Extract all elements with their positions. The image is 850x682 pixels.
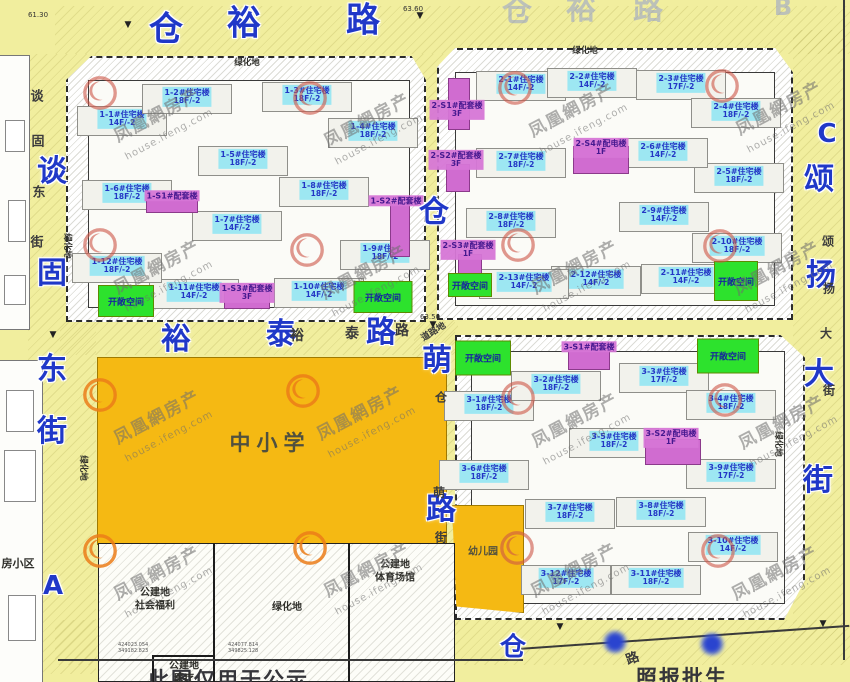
existing-building [8,200,26,242]
building-label: 1-2#住宅楼18F/-2 [162,87,211,107]
building-label: 3-6#住宅楼18F/-2 [459,463,508,483]
site-plan-map: 房小区 中小学 幼儿园 此图仅用于公示 照报批生 1-1#住宅楼14F/-21-… [0,0,850,682]
support-building-label: 3-S2#配电楼1F [644,428,699,448]
open-space: 开敞空间 [697,339,759,374]
road-name-char: 东 [37,344,67,388]
road-name-char: 大 [820,325,832,342]
parcel-divider [348,543,350,682]
grid-marker-b: B [774,0,792,21]
building-label: 3-10#住宅楼14F/-2 [706,535,761,555]
support-building-label: 1-S1#配套楼 [145,190,200,201]
support-building-footprint [568,350,610,370]
building-label: 3-11#住宅楼18F/-2 [629,568,684,588]
building-label: 2-9#住宅楼14F/-2 [639,205,688,225]
survey-arrow-icon: ▼ [820,619,827,629]
existing-building [5,120,25,152]
open-space: 开敞空间 [455,341,511,376]
building-label: 2-2#住宅楼14F/-2 [567,71,616,91]
existing-building [8,595,36,641]
school-area: 中小学 [97,357,447,545]
green-land-label: 绿化地 [572,44,598,56]
grid-marker-a: A [43,571,63,601]
road-name-char: 仓 [502,0,532,30]
road-name-char: 街 [37,406,67,450]
support-building-label: 3-S1#配套楼 [562,341,617,352]
road-name-char: 仓 [435,389,447,406]
building-label: 2-3#住宅楼17F/-2 [656,73,705,93]
survey-coordinates: 424077.814349825.128 [228,642,258,654]
support-building-label: 2-S1#配套楼3F [430,100,485,120]
road-name-char: 萌 [433,484,445,501]
existing-building [6,390,34,432]
open-space: 开敞空间 [714,261,758,301]
existing-building [4,450,36,502]
open-space: 开敞空间 [448,273,492,297]
building-label: 3-3#住宅楼17F/-2 [639,366,688,386]
parcel-label: 公建地社会福利 [135,588,175,613]
building-label: 2-1#住宅楼14F/-2 [496,74,545,94]
road-name-char: 谈 [30,86,43,105]
green-land-label: 绿化地 [234,56,260,68]
parcel-divider [152,655,215,657]
building-label: 1-11#住宅楼14F/-2 [167,282,222,302]
survey-arrow-icon: ▼ [50,330,57,340]
road-name-char: 路 [633,0,663,28]
building-label: 1-12#住宅楼18F/-2 [90,256,145,276]
building-label: 3-4#住宅楼18F/-2 [706,393,755,413]
support-building-label: 2-S4#配电楼1F [574,138,629,158]
grid-marker-c: C [817,119,836,149]
support-building-label: 1-S2#配套楼 [369,195,424,206]
building-label: 3-1#住宅楼18F/-2 [464,394,513,414]
parcel-label: 公建地体育场馆 [375,560,415,585]
building-label: 1-5#住宅楼18F/-2 [218,149,267,169]
road-name-char: 路 [366,307,396,351]
blurred-road-char [602,630,628,654]
green-land-label: 绿化地 [78,455,90,481]
survey-coordinates: 424023.054349182.823 [118,642,148,654]
building-label: 3-5#住宅楼18F/-2 [589,431,638,451]
survey-arrow-icon: ▼ [557,622,564,632]
support-building-label: 2-S3#配套楼1F [441,240,496,260]
kindergarten-label: 幼儿园 [468,543,498,558]
road-name-char: 扬 [823,280,835,297]
building-label: 2-8#住宅楼18F/-2 [486,211,535,231]
support-building-label: 2-S2#配套楼3F [429,150,484,170]
road-edge [58,659,523,661]
building-label: 2-6#住宅楼14F/-2 [638,141,687,161]
parcel-divider [213,543,215,682]
building-label: 2-4#住宅楼18F/-2 [711,101,760,121]
building-label: 2-10#住宅楼18F/-2 [710,236,765,256]
building-label: 1-8#住宅楼18F/-2 [299,180,348,200]
blurred-road-char [699,632,725,656]
parcel-label: 公建地医疗 [169,661,199,682]
road-name-char: 裕 [227,0,261,45]
road-name-char: 颂 [804,154,834,198]
open-space: 开敞空间 [98,285,154,317]
road-name-char: 裕 [161,314,191,358]
road-name-char: 路 [395,320,409,340]
existing-building [4,275,26,305]
road-name-char: 仓 [149,2,183,51]
road-name-char: 裕 [566,0,596,28]
road-name-char: 街 [30,232,43,251]
building-label: 1-3#住宅楼18F/-2 [282,85,331,105]
road-name-char: 颂 [822,233,834,250]
road-name-char: 东 [32,182,45,201]
support-building-label: 1-S3#配套楼3F [220,283,275,303]
road-name-char: 街 [803,455,833,499]
road-name-char: 固 [31,131,44,150]
road-name-char: 固 [37,248,67,292]
road-name-char: 裕 [290,325,304,345]
road-name-char: 仓 [419,187,449,231]
building-label: 3-7#住宅楼18F/-2 [545,502,594,522]
building-label: 3-8#住宅楼18F/-2 [636,500,685,520]
support-building-footprint [390,203,410,257]
elevation-value: 61.30 [28,11,48,19]
building-label: 2-12#住宅楼14F/-2 [569,269,624,289]
kindergarten-area: 幼儿园 [452,505,524,613]
building-label: 1-10#住宅楼14F/-2 [292,281,347,301]
survey-arrow-icon: ▼ [125,20,132,30]
neighborhood-label: 房小区 [2,555,35,571]
building-label: 2-11#住宅楼14F/-2 [659,267,714,287]
building-label: 1-4#住宅楼18F/-2 [348,121,397,141]
building-label: 1-7#住宅楼14F/-2 [212,214,261,234]
disclaimer-text-right: 照报批生 [636,662,728,682]
building-label: 3-12#住宅楼17F/-2 [539,568,594,588]
building-label: 2-5#住宅楼18F/-2 [714,166,763,186]
road-name-char: 仓 [500,627,526,664]
road-name-char: 泰 [345,323,359,343]
school-label: 中小学 [230,427,311,457]
building-label: 2-7#住宅楼18F/-2 [496,151,545,171]
street-edge [843,0,845,660]
building-label: 3-2#住宅楼18F/-2 [531,374,580,394]
survey-arrow-icon: ▼ [417,11,424,21]
road-name-char: 街 [823,382,835,399]
building-label: 3-9#住宅楼17F/-2 [706,462,755,482]
building-label: 1-1#住宅楼14F/-2 [97,109,146,129]
survey-arrow-icon: ▼ [430,320,437,330]
road-name-char: 街 [435,529,447,546]
green-land-label: 绿化地 [773,431,785,457]
building-label: 2-13#住宅楼14F/-2 [497,272,552,292]
parcel-label: 绿化地 [272,602,302,615]
road-name-char: 路 [346,0,380,42]
